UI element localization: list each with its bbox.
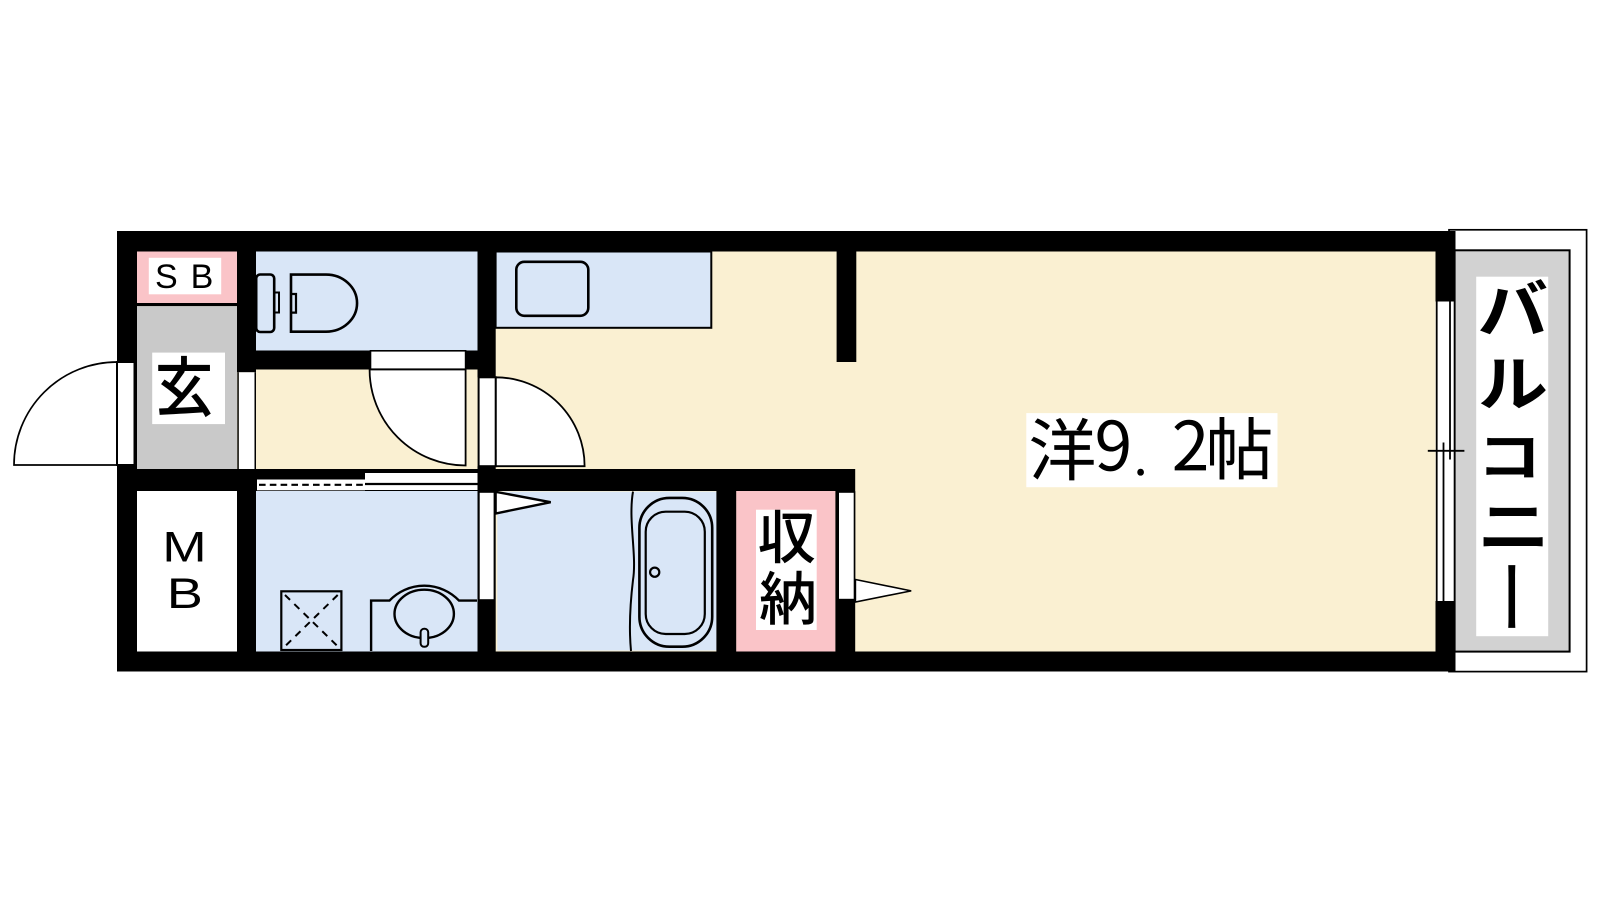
svg-text:SB: SB bbox=[155, 258, 226, 296]
svg-text:M: M bbox=[162, 523, 206, 571]
svg-text:B: B bbox=[167, 570, 203, 617]
